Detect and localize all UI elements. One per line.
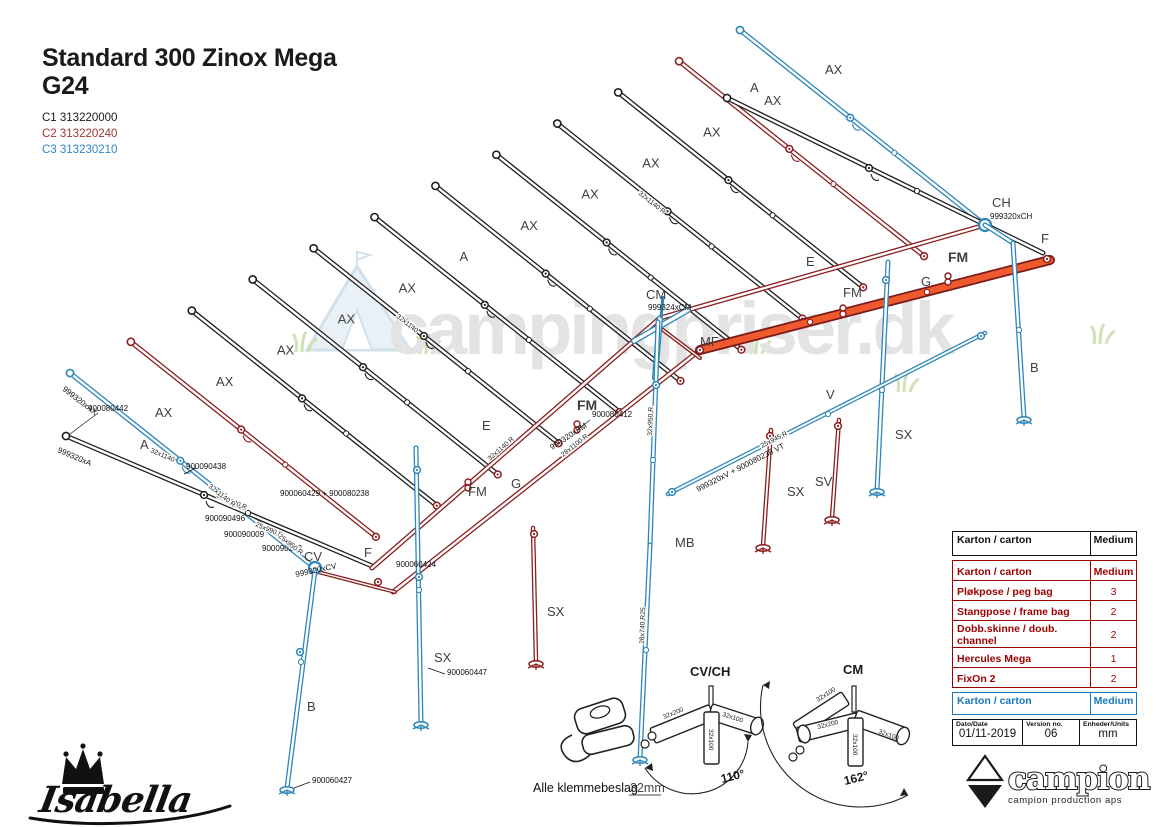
pole-dimension: 32x950 R <box>647 407 655 436</box>
clamp-pin <box>416 469 418 471</box>
callout-e: E <box>482 418 491 433</box>
code-c3: C3 313230210 <box>42 142 337 158</box>
callout-mf: MF <box>700 334 719 349</box>
watermark-text: campingpriser.dk <box>388 287 957 370</box>
cm-detail: CM 162° 32x100 32x200 32x100 32x100 <box>761 662 912 807</box>
pole-endcap <box>675 58 682 65</box>
callout-ax: AX <box>399 280 417 295</box>
clamp-pin <box>1046 258 1048 260</box>
pole-endcap <box>249 276 256 283</box>
units-cell: Enheder/Units mm <box>1080 720 1136 745</box>
clamp-pin <box>497 473 499 475</box>
crown-dot <box>97 751 102 756</box>
cm-pipe-down-dim: 32x100 <box>851 734 858 756</box>
clamp-note: Alle klemmebeslag <box>533 781 638 795</box>
callout-ax: AX <box>155 405 173 420</box>
pole-endcap <box>371 213 378 220</box>
spring-hook-icon <box>871 174 879 180</box>
karton-table-red: Karton / carton Medium Pløkpose / peg ba… <box>952 560 1137 688</box>
pole-endcap <box>188 307 195 314</box>
callout-e: E <box>806 254 815 269</box>
clamp-pin <box>699 349 701 351</box>
pole-endcap <box>554 120 561 127</box>
date-value: 01/11-2019 <box>953 728 1022 745</box>
version-label: Version no. <box>1023 720 1079 728</box>
part-number: 900080412 <box>592 410 633 419</box>
clamp-pin <box>788 148 790 150</box>
model-codes: C1 313220000 C2 313220240 C3 313230210 <box>42 110 337 158</box>
callout-sx: SX <box>787 484 805 499</box>
crown-dot <box>80 743 85 748</box>
title-block: Standard 300 Zinox Mega G24 C1 313220000… <box>42 44 337 158</box>
clamp-pin <box>545 273 547 275</box>
isabella-logo: Isabella <box>30 743 230 823</box>
version-cell: Version no. 06 <box>1023 720 1080 745</box>
part-number: 900090438 <box>186 462 227 471</box>
callout-sx: SX <box>547 604 565 619</box>
clamp-pin <box>679 380 681 382</box>
callout-g: G <box>511 476 521 491</box>
pole-dimension: 32x1140 R <box>637 190 667 216</box>
arc-arrow <box>900 788 908 796</box>
item-qty: 1 <box>1090 648 1136 667</box>
code-c2: C2 313220240 <box>42 126 337 142</box>
leader-line <box>294 782 310 788</box>
units-value: mm <box>1080 728 1136 745</box>
karton-size: Medium <box>1090 532 1136 555</box>
clamp-pin <box>980 335 982 337</box>
part-number: 999320xV + 900080238 VT <box>695 441 786 493</box>
item-qty: 2 <box>1090 601 1136 620</box>
fm-clamp-icon <box>840 311 846 317</box>
callout-cm: CM <box>646 287 666 302</box>
clamp-pin <box>666 210 668 212</box>
part-number: 900060424 <box>396 560 437 569</box>
callout-fm: FM <box>948 249 968 265</box>
part-number: 900090496 <box>205 514 246 523</box>
callout-sx: SX <box>434 650 452 665</box>
callout-f: F <box>364 545 372 560</box>
item-label: FixOn 2 <box>953 671 1090 685</box>
table-row: FixOn 2 2 <box>953 668 1136 687</box>
isabella-wordmark: Isabella <box>35 778 195 821</box>
campion-subtitle: campion production aps <box>1008 795 1122 806</box>
arc-arrow <box>763 681 770 689</box>
cm-fixon-hook <box>796 746 804 754</box>
campion-diamond-bottom-icon <box>968 785 1002 808</box>
part-number: 900060429 + 900080238 <box>280 489 370 498</box>
leader-line <box>428 668 445 674</box>
arc-arrow <box>744 734 752 742</box>
pole-endcap <box>723 94 730 101</box>
clamp-pin <box>362 366 364 368</box>
clamp-pin <box>377 581 379 583</box>
clamp-pin <box>203 494 205 496</box>
page-title: Standard 300 Zinox Mega G24 <box>42 44 337 100</box>
table-row: Dobb.skinne / doub. channel 2 <box>953 621 1136 648</box>
pole-core <box>832 420 839 518</box>
cm-angle: 162° <box>842 768 870 788</box>
clamp-pin <box>740 349 742 351</box>
clamp-pin <box>655 384 657 386</box>
fm-clamp-icon <box>945 279 951 285</box>
clamp-pin <box>837 425 839 427</box>
callout-ax: AX <box>703 124 721 139</box>
item-label: Pløkpose / peg bag <box>953 584 1090 598</box>
karton-table-black: Karton / carton Medium <box>952 531 1137 556</box>
cm-detail-title: CM <box>843 662 863 677</box>
clamp-pin <box>727 179 729 181</box>
callout-ax: AX <box>581 187 599 202</box>
clamp-pin <box>885 279 887 281</box>
crown-dot <box>63 751 68 756</box>
cvch-detail: CV/CH 110° 32x200 32x100 32x100 <box>641 664 765 794</box>
revision-table: Dato/Date 01/11-2019 Version no. 06 Enhe… <box>952 719 1137 746</box>
campion-logo: campion campion production aps <box>968 756 1150 808</box>
item-label: Hercules Mega <box>953 651 1090 665</box>
watermark-tent-flag <box>357 252 370 266</box>
units-label: Enheder/Units <box>1080 720 1136 728</box>
karton-label: Karton / carton <box>953 532 1090 555</box>
pole-endcap <box>493 151 500 158</box>
callout-mb: MB <box>675 535 695 550</box>
clamp-pin <box>418 576 420 578</box>
item-qty: 2 <box>1090 668 1136 687</box>
part-number: 900090009 <box>224 530 265 539</box>
karton-label: Karton / carton <box>953 693 1090 714</box>
karton-size: Medium <box>1090 693 1136 714</box>
callout-a: A <box>460 249 469 264</box>
cvch-pipe-down-dim: 32x100 <box>707 729 714 751</box>
table-row: Hercules Mega 1 <box>953 648 1136 668</box>
callout-v: V <box>826 387 835 402</box>
callout-ax: AX <box>520 218 538 233</box>
callout-ax: AX <box>338 311 356 326</box>
pole-endcap <box>127 338 134 345</box>
callout-ax: AX <box>825 62 843 77</box>
callout-ch: CH <box>992 195 1011 210</box>
cvch-fixon-hook <box>641 740 649 748</box>
pole-dimension: 32x1140 <box>149 447 175 464</box>
fm-clamp-icon <box>840 305 846 311</box>
clamp-pin <box>375 536 377 538</box>
callout-ax: AX <box>216 374 234 389</box>
clamp-pin <box>862 286 864 288</box>
spring-hook-icon <box>206 501 214 507</box>
clamp-pin <box>671 491 673 493</box>
pole-core <box>618 92 863 287</box>
clamp-pin <box>533 533 535 535</box>
code-c1: C1 313220000 <box>42 110 337 126</box>
part-number: 999320xA <box>56 446 93 469</box>
callout-sv: SV <box>815 474 833 489</box>
fm-clamp-icon <box>945 273 951 279</box>
pole-core <box>131 342 376 537</box>
callout-g: G <box>921 274 931 289</box>
callout-sx: SX <box>895 427 913 442</box>
item-qty: 2 <box>1090 621 1136 647</box>
pole-dimension: 28x740 R25 <box>639 607 647 644</box>
part-number: 999320xCH <box>990 212 1032 221</box>
clamp-pin <box>423 335 425 337</box>
table-row: Karton / carton Medium <box>953 532 1136 555</box>
pole-core <box>66 436 372 566</box>
callout-fm: FM <box>468 484 487 499</box>
callout-ax: AX <box>764 93 782 108</box>
table-row: Karton / carton Medium <box>953 693 1136 714</box>
callout-b: B <box>1030 360 1039 375</box>
table-row: Stangpose / frame bag 2 <box>953 601 1136 621</box>
callout-fm: FM <box>843 285 862 300</box>
clamp-pin <box>240 428 242 430</box>
part-number: 900060427 <box>312 776 353 785</box>
item-label: Stangpose / frame bag <box>953 604 1090 618</box>
pole-core <box>287 570 315 788</box>
callout-a: A <box>750 80 759 95</box>
campion-wordmark: campion <box>1008 761 1150 797</box>
clamp-pin <box>436 505 438 507</box>
date-label: Dato/Date <box>953 720 1022 728</box>
callout-f: F <box>1041 231 1049 246</box>
clamp-pin <box>179 460 181 462</box>
clamp-pin <box>301 397 303 399</box>
title-line1: Standard 300 Zinox Mega <box>42 44 337 72</box>
item-label: Dobb.skinne / doub. channel <box>953 621 1090 647</box>
pole-endcap <box>62 432 69 439</box>
pole-core <box>318 572 395 592</box>
campion-diamond-top-icon <box>968 756 1002 780</box>
karton-table-blue: Karton / carton Medium <box>952 692 1137 715</box>
title-line2: G24 <box>42 72 88 100</box>
cm-fixon-hook <box>789 753 797 761</box>
cvch-fixon-hook <box>648 732 656 740</box>
cm-pin <box>852 686 856 712</box>
callout-b: B <box>307 699 316 714</box>
clamp-pin <box>299 651 301 653</box>
cvch-detail-title: CV/CH <box>690 664 730 679</box>
pole-core <box>679 61 924 256</box>
clamp-pin <box>868 167 870 169</box>
part-number: 999324xCM <box>648 303 691 312</box>
date-cell: Dato/Date 01/11-2019 <box>953 720 1023 745</box>
karton-size: Medium <box>1090 561 1136 580</box>
pole-endcap <box>432 182 439 189</box>
callout-a: A <box>140 437 149 452</box>
drawing-sheet: campingpriser.dk AXAXAXAXAXAAXAXAXAXAXAX… <box>0 0 1169 827</box>
pole-core <box>740 30 985 225</box>
clamp-pin <box>769 435 771 437</box>
karton-label: Karton / carton <box>953 564 1090 578</box>
clamp-pin <box>849 117 851 119</box>
callout-ax: AX <box>277 343 295 358</box>
part-number: 900060447 <box>447 668 488 677</box>
version-value: 06 <box>1023 728 1079 745</box>
pole-endcap <box>615 89 622 96</box>
item-qty: 3 <box>1090 581 1136 600</box>
pole-endcap <box>310 245 317 252</box>
table-header-row: Karton / carton Medium <box>953 561 1136 581</box>
clamp-pin <box>484 304 486 306</box>
pole-endcap <box>736 26 743 33</box>
cvch-angle: 110° <box>719 766 746 785</box>
clamp-pin <box>606 241 608 243</box>
callout-ax: AX <box>642 156 660 171</box>
table-row: Pløkpose / peg bag 3 <box>953 581 1136 601</box>
clamp-pin <box>923 255 925 257</box>
pole-endcap <box>66 369 73 376</box>
callout-cv: CV <box>304 549 322 564</box>
